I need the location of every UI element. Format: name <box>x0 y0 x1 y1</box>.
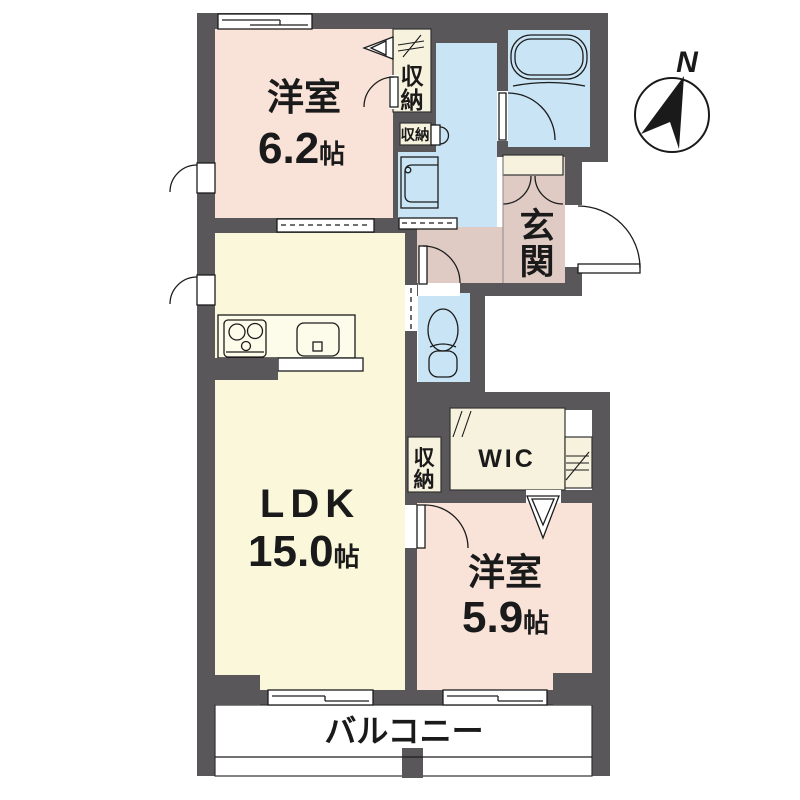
entrance-label-char1: 玄 <box>519 207 554 246</box>
ldk-size-value: 15.0 <box>248 527 334 576</box>
bedroom2-size-unit: 帖 <box>523 608 549 638</box>
compass: N <box>635 46 709 152</box>
wall-right-lower <box>592 410 610 776</box>
wall-ldk-corner-step <box>215 675 260 705</box>
door-washroom-sliding <box>399 218 457 229</box>
room-washroom-floor <box>436 43 497 227</box>
balcony-partition <box>402 748 423 778</box>
door-entrance <box>565 205 640 273</box>
entrance-label-char2: 関 <box>519 243 554 282</box>
bedroom1-size-value: 6.2 <box>258 124 319 173</box>
window-bedroom1-top <box>218 14 312 29</box>
bedroom2-name-label: 洋室 <box>468 551 542 593</box>
closet-hall-label: 収納 <box>401 126 430 144</box>
room-bathroom-floor <box>508 30 590 147</box>
bedroom1-size-unit: 帖 <box>319 139 345 169</box>
wall-washroom-top <box>436 30 505 43</box>
wall-left <box>197 13 215 776</box>
door-ldk-sliding <box>405 285 417 331</box>
window-bedroom2-balcony <box>443 690 547 705</box>
compass-north-label: N <box>676 46 699 79</box>
wall-toilet-bottom <box>405 382 485 410</box>
wall-under-notch <box>485 392 610 410</box>
bedroom1-name-label: 洋室 <box>267 76 341 118</box>
window-bedroom1-left <box>170 163 215 193</box>
closet-bedroom1-label-char2: 納 <box>401 87 424 113</box>
window-ldk-balcony <box>268 690 373 705</box>
balcony-label: バルコニー <box>324 713 483 749</box>
room-hallway-floor <box>417 227 503 283</box>
bedroom2-size-value: 5.9 <box>462 593 523 642</box>
floor-plan-canvas: N 洋室 6.2帖 LDK 15.0帖 洋室 5.9帖 玄 関 バルコニー WI… <box>0 0 800 800</box>
floor-plan-drawing: N 洋室 6.2帖 LDK 15.0帖 洋室 5.9帖 玄 関 バルコニー WI… <box>0 0 800 800</box>
closet-ldk-label-char2: 納 <box>414 468 435 492</box>
closet-ldk-label-char1: 収 <box>414 447 436 470</box>
wall-wic-bottom <box>450 490 592 503</box>
room-toilet-floor <box>418 293 470 382</box>
room-ldk-floor <box>215 233 405 690</box>
ldk-name-label: LDK <box>260 482 360 526</box>
wic-label: WIC <box>478 445 536 473</box>
shoe-cabinet <box>503 155 563 175</box>
ldk-size-unit: 帖 <box>334 542 360 572</box>
closet-bedroom1-label-char1: 収 <box>401 63 425 89</box>
wall-kitchen-stub <box>215 358 278 380</box>
window-ldk-left <box>170 275 215 305</box>
window-bedroom1-ldk <box>277 219 374 232</box>
wall-bedroom2-corner-step <box>553 673 610 705</box>
wall-right-bath <box>590 13 608 162</box>
